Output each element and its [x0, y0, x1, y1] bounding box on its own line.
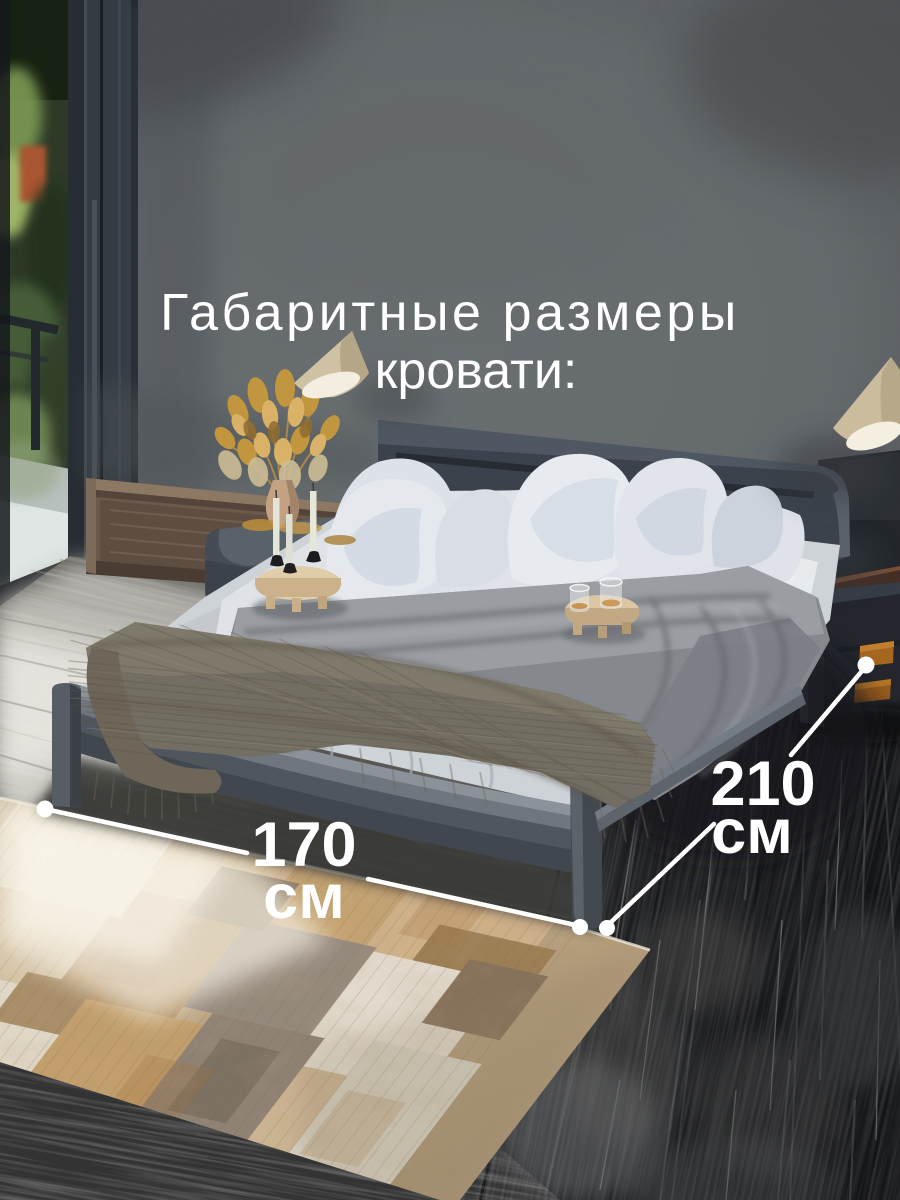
svg-text:кровати:: кровати: [375, 342, 578, 400]
svg-text:см: см [711, 797, 793, 867]
svg-text:Габаритные размеры: Габаритные размеры [160, 284, 740, 342]
svg-text:см: см [263, 862, 345, 932]
